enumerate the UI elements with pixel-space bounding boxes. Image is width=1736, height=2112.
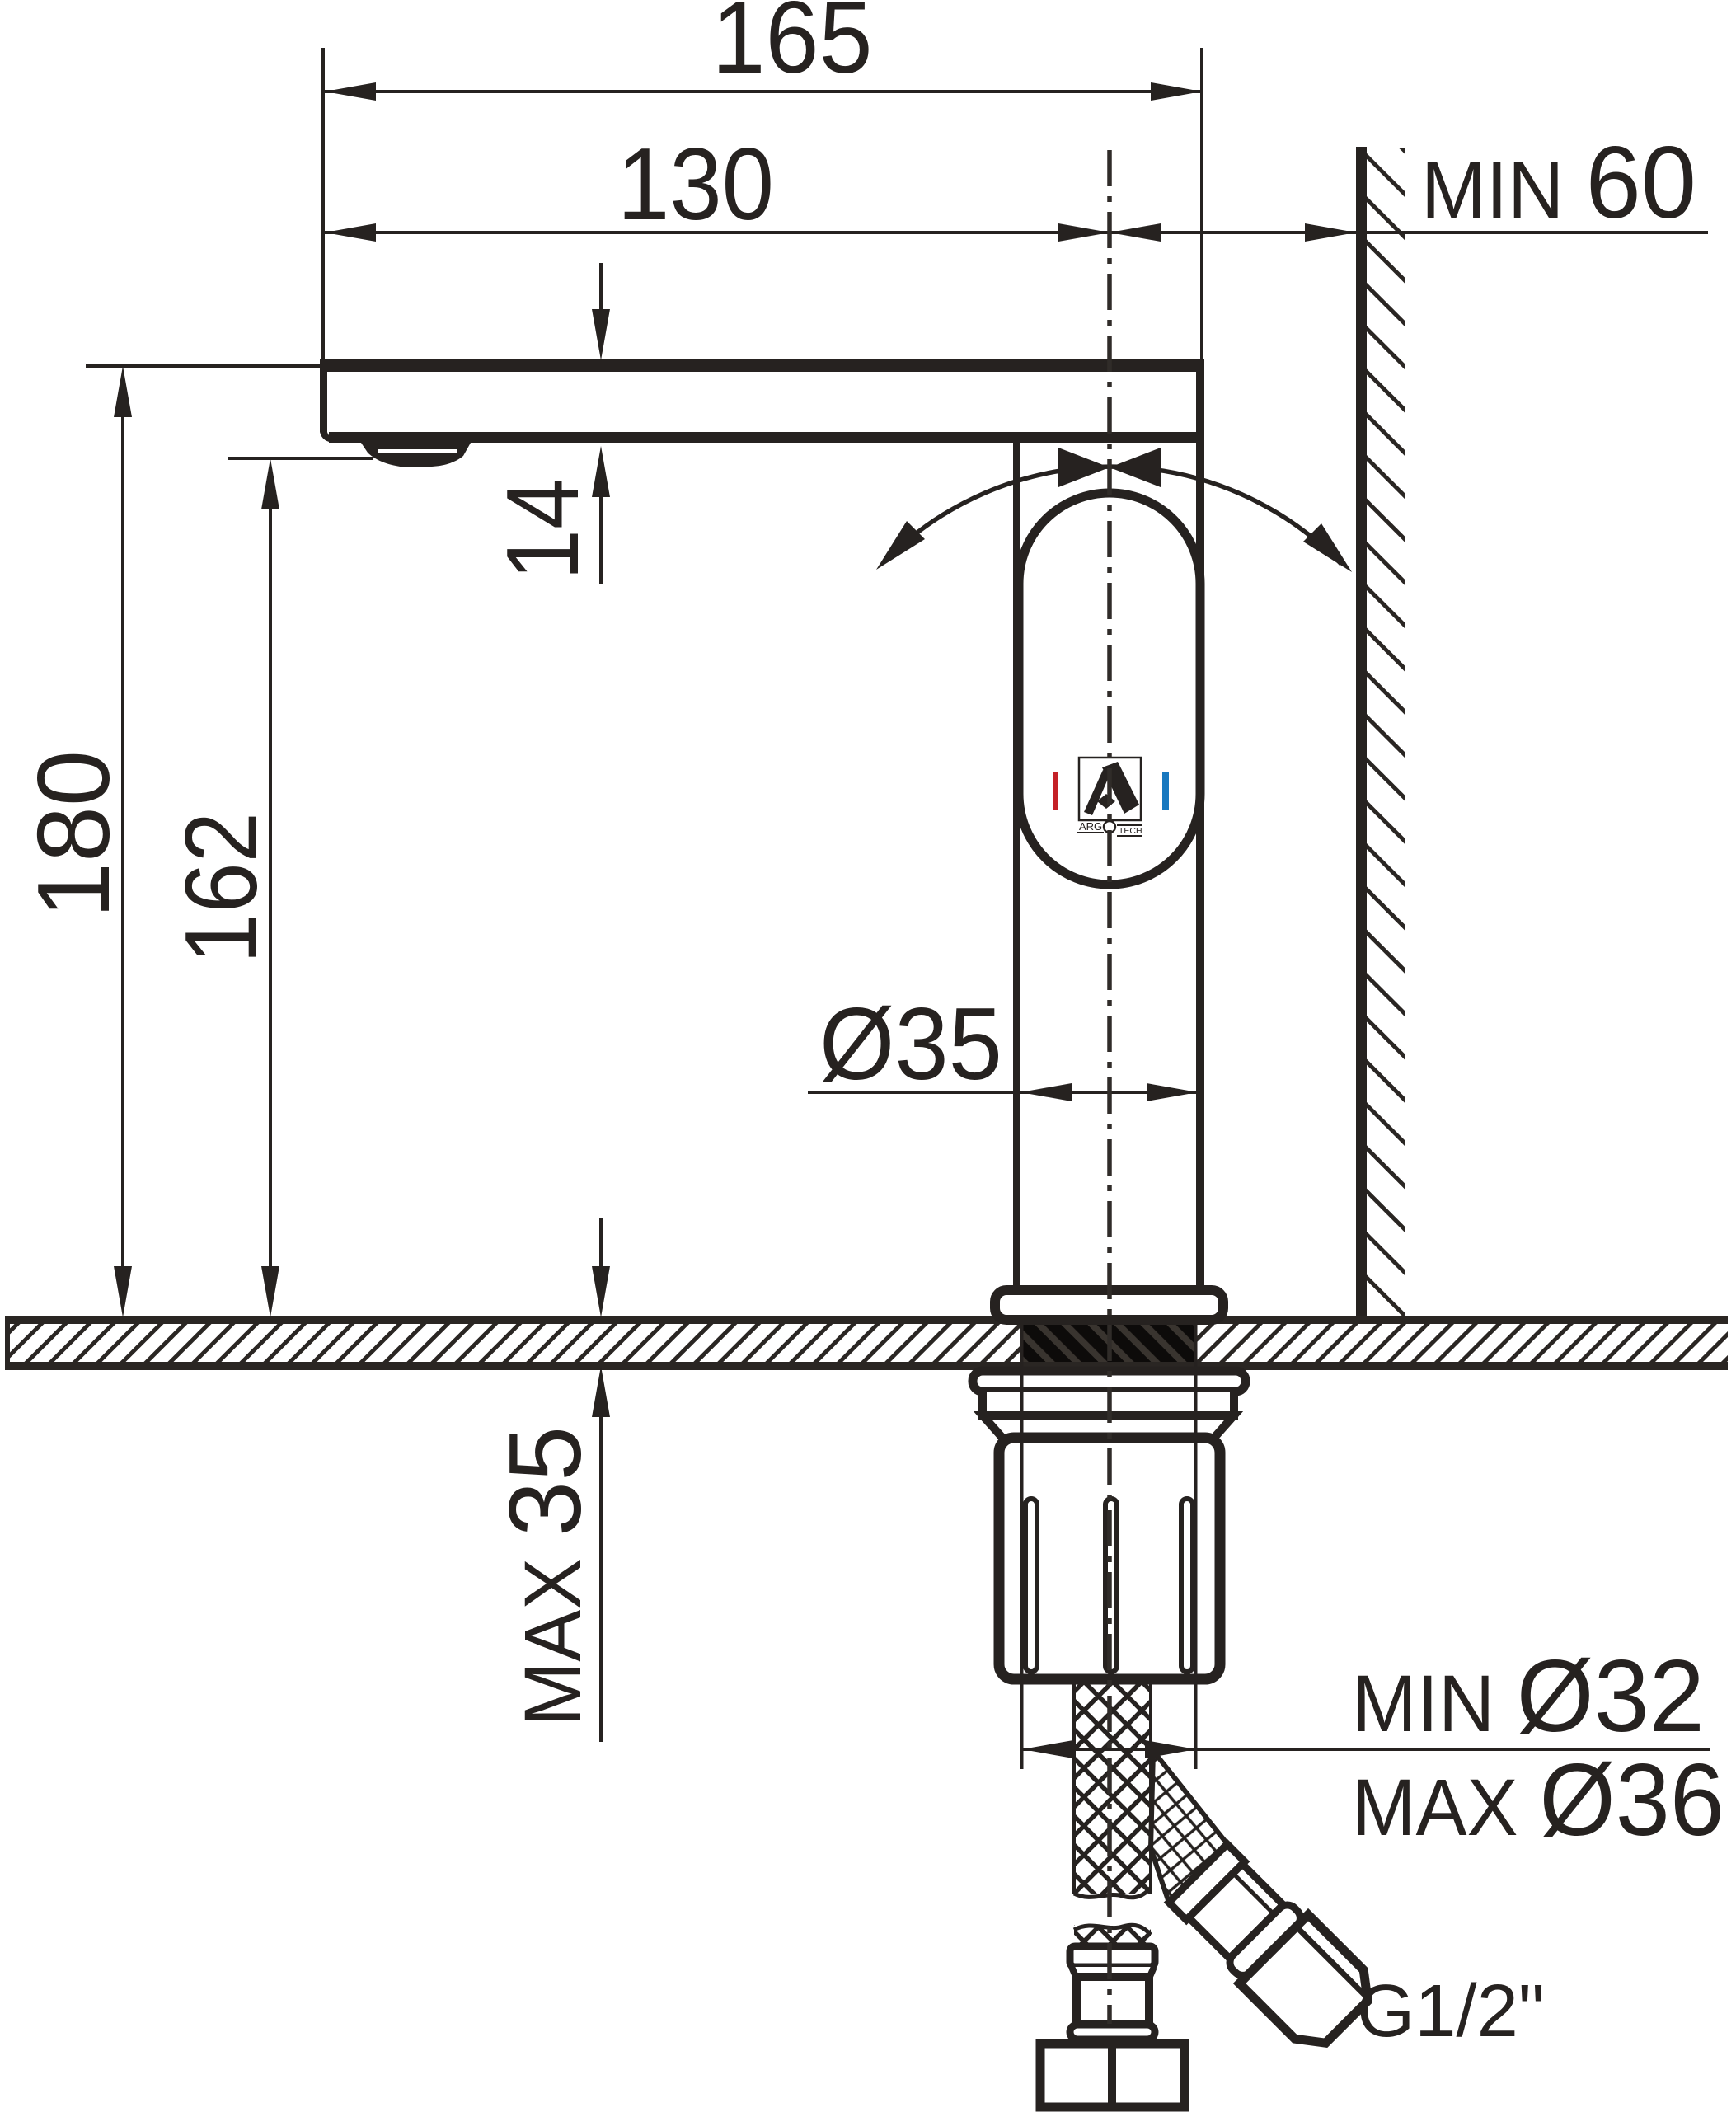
svg-text:ARG: ARG — [1079, 820, 1102, 833]
svg-text:14: 14 — [486, 478, 600, 580]
svg-text:130: 130 — [617, 128, 774, 242]
svg-text:162: 162 — [165, 812, 279, 964]
svg-text:Ø35: Ø35 — [819, 988, 1002, 1101]
svg-text:G1/2": G1/2" — [1357, 1970, 1545, 2053]
svg-text:180: 180 — [17, 750, 131, 918]
svg-text:165: 165 — [712, 0, 873, 95]
svg-text:TECH: TECH — [1119, 826, 1142, 836]
